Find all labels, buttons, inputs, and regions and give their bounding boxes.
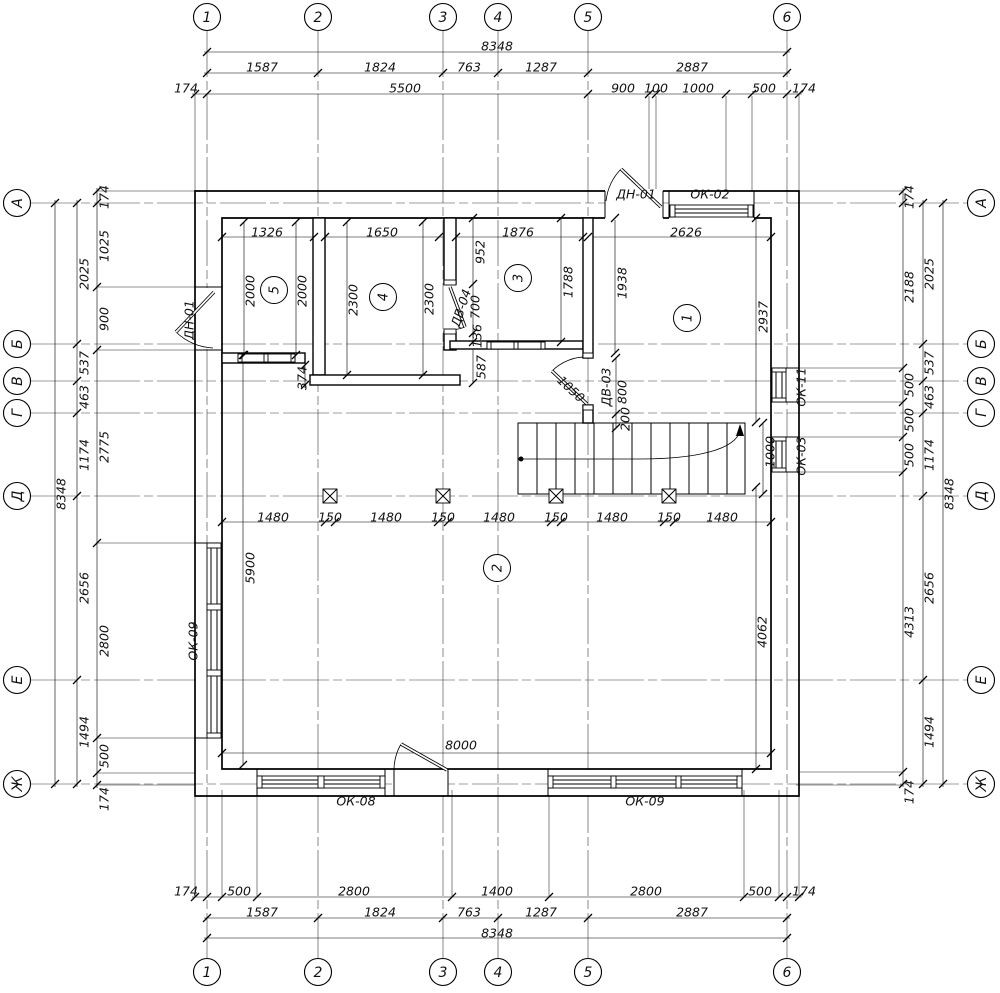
dim-text: 1824 <box>364 59 396 74</box>
axis-bubble-label: 4 <box>494 965 503 981</box>
tag-text: ОК-11 <box>793 367 808 406</box>
dim-text: 1174 <box>921 439 936 471</box>
dim-text: 463 <box>921 385 936 409</box>
dim-text: 1587 <box>246 904 278 919</box>
axis-bubble-label: 3 <box>439 10 448 26</box>
dim-text: 1480 <box>596 509 628 524</box>
post <box>549 489 563 503</box>
dimension-lines <box>55 52 943 938</box>
dim-text: 500 <box>901 373 916 397</box>
dim-text: 763 <box>457 59 481 74</box>
dim-text: 2775 <box>96 431 111 463</box>
dim-text: 763 <box>457 904 481 919</box>
dim-text: 2188 <box>901 271 916 303</box>
dim-text: 1287 <box>525 59 557 74</box>
tag-text: ОК-09 <box>185 621 200 660</box>
axis-bubble-label: 3 <box>439 965 448 981</box>
room-number: 1 <box>681 314 696 322</box>
dim-text: 174 <box>901 185 916 209</box>
sill-element-room5 <box>238 354 295 362</box>
axis-bubble-label: Д <box>10 490 26 502</box>
dim-text: 2887 <box>676 904 708 919</box>
dim-text: 2800 <box>338 883 370 898</box>
dim-text: 1480 <box>370 509 402 524</box>
post <box>436 489 450 503</box>
door-bottom <box>394 744 447 770</box>
dim-text: 1025 <box>96 230 111 262</box>
window-ok-02 <box>670 205 753 217</box>
axis-bubble-label: Е <box>10 675 26 684</box>
dim-text: 174 <box>792 883 816 898</box>
dim-text: 174 <box>96 185 111 209</box>
axis-bubble-label: В <box>974 376 990 386</box>
dim-text: 1876 <box>502 224 534 239</box>
axis-bubble-label: Е <box>974 675 990 684</box>
dim-text: 2887 <box>676 59 708 74</box>
dim-text: 1824 <box>364 904 396 919</box>
dim-text: 150 <box>431 509 455 524</box>
dim-text: 4313 <box>901 606 916 638</box>
room-number: 3 <box>512 274 527 282</box>
axis-bubble-label: В <box>10 376 26 386</box>
dim-text: 150 <box>657 509 681 524</box>
dim-text: 2025 <box>921 258 936 290</box>
dim-text: 1938 <box>614 267 629 299</box>
dim-text: 500 <box>901 443 916 467</box>
dim-text: 174 <box>901 780 916 804</box>
sill-element-room3 <box>487 342 545 349</box>
stairs <box>518 423 745 494</box>
dim-text: 1400 <box>481 883 513 898</box>
axis-bubble-label: 6 <box>783 965 792 981</box>
interior-walls <box>222 218 593 423</box>
window-ok-09-bottom <box>548 776 742 788</box>
stairs-direction-arrow <box>736 424 744 436</box>
dim-text: 100 <box>644 80 668 95</box>
dim-text: 1000 <box>762 436 777 468</box>
dim-text: 500 <box>96 744 111 768</box>
dim-text: 2656 <box>921 572 936 604</box>
dim-text: 2025 <box>76 258 91 290</box>
tag-text: ОК-02 <box>690 186 729 201</box>
axis-bubble-label: 5 <box>584 965 593 981</box>
dim-text: 200 <box>617 407 632 431</box>
axis-bubble-label: Г <box>974 408 990 417</box>
axis-bubble-label: А <box>974 198 990 209</box>
dim-text: 587 <box>473 355 488 379</box>
dim-text: 1494 <box>921 716 936 748</box>
dim-text: 537 <box>76 351 91 375</box>
dim-text: 5900 <box>242 552 257 584</box>
room-number: 5 <box>268 286 283 294</box>
axis-bubbles: 112233445566ААББВВГГДДЕЕЖЖ <box>4 4 995 986</box>
axis-bubble-label: Г <box>10 408 26 417</box>
axis-bubble-label: 4 <box>494 10 503 26</box>
dim-text: 1000 <box>682 80 714 95</box>
dim-text: 174 <box>96 787 111 811</box>
axis-bubble-label: 1 <box>203 10 212 26</box>
dim-text: 2626 <box>670 224 702 239</box>
dim-text: 1587 <box>246 59 278 74</box>
dim-text: 174 <box>174 80 198 95</box>
tag-text: ДН-01 <box>615 186 656 201</box>
dim-text: 2800 <box>630 883 662 898</box>
tag-text: ОК-09 <box>625 793 664 808</box>
dim-text: 2800 <box>96 625 111 657</box>
room-number: 2 <box>491 564 506 572</box>
dim-text: 500 <box>901 408 916 432</box>
post <box>323 489 337 503</box>
tag-text: ДВ-03 <box>598 368 613 408</box>
dim-text: 900 <box>611 80 635 95</box>
floor-plan-drawing: 112233445566ААББВВГГДДЕЕЖЖ 12345 8348158… <box>0 0 1000 993</box>
axis-bubble-label: А <box>10 198 26 209</box>
dim-text: 8348 <box>481 925 513 940</box>
dim-text: 2937 <box>755 301 770 333</box>
axis-bubble-label: 6 <box>783 10 792 26</box>
stairs-walkline <box>521 431 740 459</box>
axis-bubble-label: 5 <box>584 10 593 26</box>
dim-text: 500 <box>227 883 251 898</box>
dim-text: 500 <box>748 883 772 898</box>
dim-text: 150 <box>318 509 342 524</box>
dim-text: 8000 <box>445 737 477 752</box>
dim-text: 952 <box>472 240 487 264</box>
dim-text: 1788 <box>560 266 575 298</box>
tag-text: ОК-08 <box>336 793 375 808</box>
axis-bubble-label: Б <box>10 339 26 349</box>
axis-bubble-label: 2 <box>314 10 323 26</box>
dim-text: 8348 <box>481 38 513 53</box>
post <box>662 489 676 503</box>
dim-text: 150 <box>544 509 568 524</box>
axis-grid-lines <box>31 31 967 958</box>
dim-text: 136 <box>469 324 484 348</box>
dimension-ticks <box>51 48 947 942</box>
dim-text: 1494 <box>76 716 91 748</box>
room-number: 4 <box>377 293 392 301</box>
dim-text: 463 <box>76 385 91 409</box>
dim-text: 500 <box>752 80 776 95</box>
dim-text: 800 <box>614 380 629 404</box>
window-ok-11 <box>772 368 786 402</box>
dim-text: 174 <box>174 883 198 898</box>
tag-text: ДН-01 <box>181 300 196 341</box>
dim-text: 8348 <box>941 478 956 510</box>
dim-text: 2656 <box>76 572 91 604</box>
axis-bubble-label: 1 <box>203 965 212 981</box>
window-ok-09-left <box>207 543 221 738</box>
dim-text: 1174 <box>76 439 91 471</box>
dim-text: 1326 <box>251 224 283 239</box>
axis-bubble-label: Б <box>974 339 990 349</box>
dim-text: 8348 <box>53 478 68 510</box>
dim-text: 900 <box>96 307 111 331</box>
window-ok-08 <box>257 776 385 788</box>
dim-text: 174 <box>792 80 816 95</box>
dim-text: 5500 <box>389 80 421 95</box>
axis-bubble-label: Ж <box>10 776 26 793</box>
dim-text: 4062 <box>754 616 769 648</box>
axis-bubble-label: Ж <box>974 776 990 793</box>
dimension-texts: 8348158718247631287288717455009001001000… <box>53 38 956 940</box>
dim-text: 1650 <box>366 224 398 239</box>
dim-text: 1287 <box>525 904 557 919</box>
dim-text: 2000 <box>242 275 257 307</box>
dim-text: 1480 <box>483 509 515 524</box>
dim-text: 537 <box>921 351 936 375</box>
dim-text: 374 <box>294 366 309 390</box>
axis-bubble-label: 2 <box>314 965 323 981</box>
dim-text: 1480 <box>257 509 289 524</box>
axis-bubble-label: Д <box>974 490 990 502</box>
dim-text: 1480 <box>706 509 738 524</box>
dim-text: 2000 <box>294 275 309 307</box>
tag-text: ОК-03 <box>793 436 808 475</box>
dim-text: 2300 <box>345 284 360 316</box>
dim-text: 2300 <box>421 283 436 315</box>
